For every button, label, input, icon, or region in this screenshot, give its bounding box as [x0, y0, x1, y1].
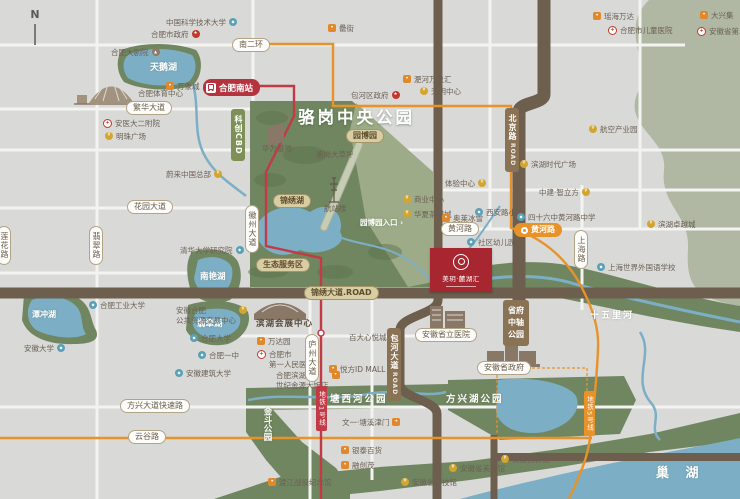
poi-text: 骆岗大草坪 — [316, 150, 354, 160]
pill-text: 花园大道 — [134, 202, 166, 211]
school-icon — [89, 301, 97, 309]
pill-text: 南二环 — [239, 40, 263, 49]
compass: N — [24, 8, 46, 44]
poi-label: 合肥工业大学 — [89, 301, 145, 311]
poi-label: 蔚来中国总部 — [166, 170, 222, 180]
poi-text: 安徽大学 — [24, 344, 54, 354]
shop-icon — [328, 24, 336, 32]
poi-text: 滨湖卓越城 — [658, 220, 696, 230]
poi-label: 安徽省科技馆 — [401, 478, 457, 488]
poi-label: 万达园 — [257, 337, 291, 347]
poi-text: 融创茂 — [352, 461, 375, 471]
area-name: 天鹅湖 — [150, 60, 177, 73]
poi-text: 淝河万象汇 — [414, 75, 452, 85]
poi-text: 明珠广场 — [116, 132, 146, 142]
road-pill: 莲花路 — [0, 226, 11, 265]
road-pill: 地铁1号线 — [316, 386, 327, 431]
pill-text: 生态服务区 — [263, 260, 303, 269]
gold-icon — [520, 160, 528, 168]
road-pill: 花园大道 — [127, 200, 173, 214]
poi-text: 航站楼 — [324, 204, 347, 214]
gold-icon — [420, 87, 428, 95]
poi-label: 明珠广场 — [105, 132, 146, 142]
pill-text: 徽州大道 — [248, 211, 257, 247]
road-pill: 省府中轴公园 — [503, 300, 529, 346]
gov-icon — [192, 30, 200, 38]
poi-text: 合肥体育中心 — [138, 89, 183, 99]
shop-icon — [341, 461, 349, 469]
poi-label: 骆岗大草坪 — [316, 150, 354, 160]
pill-text: 安徽省立医院 — [422, 330, 470, 339]
poi-label: 滨湖时代广场 — [520, 160, 576, 170]
poi-label: 商业中心 — [403, 195, 444, 205]
shop-icon — [341, 446, 349, 454]
gold-icon — [401, 478, 409, 486]
project-name: 美玥·麓湖汇 — [442, 273, 480, 283]
pill-text: 繁华大道 — [133, 103, 165, 112]
gold-icon — [582, 188, 590, 196]
gold-icon — [478, 179, 486, 187]
gold-icon — [647, 220, 655, 228]
school-icon — [597, 263, 605, 271]
area-name: 十五里河 — [590, 308, 634, 321]
gold-icon — [449, 464, 457, 472]
poi-text: 文一·塘溪津门 — [342, 418, 389, 428]
poi-label: 安徽建筑大学 — [175, 369, 231, 379]
poi-text: 百大心悦城 — [349, 333, 387, 343]
road-pill: 生态服务区 — [256, 258, 310, 272]
poi-text: 瑶海万达 — [604, 12, 634, 22]
shop-icon — [329, 365, 337, 373]
poi-text: 上海世界外国语学校 — [608, 263, 676, 273]
labels-layer: 南二环繁华大道花园大道翡翠路莲花路徽州大道黄河路上海路方兴大道快速路云谷路庐州大… — [0, 0, 740, 499]
poi-label: 合肥市儿童医院 — [608, 26, 673, 36]
pill-text: 园博园 — [353, 131, 377, 140]
compass-needle-icon — [34, 24, 36, 45]
poi-text: 四十六中黄河路中学 — [528, 213, 596, 223]
poi-text: 商业中心 — [414, 195, 444, 205]
poi-label: 安医大二附院 — [103, 119, 160, 129]
poi-label: 清华大学研究院 — [180, 246, 244, 256]
pill-text: 省府中轴公园 — [508, 306, 524, 339]
poi-text: 大兴集 — [711, 11, 734, 21]
pill-text: 翡翠路 — [92, 232, 101, 259]
school-icon — [57, 344, 65, 352]
poi-text: 清华大学研究院 — [180, 246, 233, 256]
poi-text: 中国科学技术大学 — [166, 18, 226, 28]
gold-icon — [403, 195, 411, 203]
road-pill: 方兴大道快速路 — [120, 399, 190, 413]
road-pill: 庐州大道 — [305, 334, 319, 382]
area-name: 方兴湖公园 — [446, 391, 504, 405]
shop-icon — [257, 337, 265, 345]
road-pill: 包河大道ROAD — [387, 328, 401, 401]
poi-label: 安徽合肥公共资源交易中心 — [176, 306, 247, 326]
pill-text: 莲花路 — [0, 232, 9, 259]
project-marker: 美玥·麓湖汇 — [430, 248, 492, 292]
poi-text: 中建·智立方 — [539, 188, 579, 198]
poi-text: 银泰百货 — [352, 446, 382, 456]
road-pill: 地铁5号线 — [584, 391, 595, 436]
pill-text: 锦绣湖 — [280, 196, 304, 205]
poi-label: 融创茂 — [341, 461, 375, 471]
poi-text: 安徽建筑大学 — [186, 369, 231, 379]
poi-label: 大兴集 — [700, 11, 734, 21]
pill-text: 黄河路 — [448, 224, 472, 233]
poi-label: 合肥一中 — [198, 351, 239, 361]
pill-text: 上海路 — [577, 236, 586, 263]
road-pill: 科创CBD — [231, 109, 245, 161]
hefei-south-station-label: 合肥南站 — [203, 79, 260, 96]
pill-subtext: ROAD — [391, 372, 397, 395]
area-name: 金斗公园 — [261, 407, 273, 441]
pill-text: 方兴大道快速路 — [127, 401, 183, 410]
poi-text: 包河区政府 — [351, 91, 389, 101]
shop-icon — [593, 12, 601, 20]
poi-text: 合肥市儿童医院 — [620, 26, 673, 36]
station-name: 合肥南站 — [219, 82, 253, 94]
road-pill: 翡翠路 — [89, 226, 103, 265]
road-pill: 安徽省政府 — [477, 361, 531, 375]
poi-label: 四十六中黄河路中学 — [517, 213, 596, 223]
gold-icon — [589, 125, 597, 133]
poi-text: 万达园 — [268, 337, 291, 347]
poi-text: 安徽省科技馆 — [412, 478, 457, 488]
school-icon — [175, 369, 183, 377]
road-pill: 安徽省立医院 — [415, 328, 477, 342]
pill-text: 安徽省政府 — [484, 363, 524, 372]
poi-text: 罍街 — [339, 24, 354, 34]
road-pill: 园博园 — [346, 129, 384, 143]
road-pill: 黄河路 — [514, 223, 562, 237]
poi-text: 安徽省美术馆 — [460, 464, 505, 474]
cross-icon — [103, 119, 112, 128]
poi-text: 蔚来中国总部 — [166, 170, 211, 180]
pill-text: 云谷路 — [135, 432, 159, 441]
school-icon — [236, 246, 244, 254]
poi-text: 安徽省第二人民医院 — [709, 27, 740, 37]
poi-label: 合肥市政府 — [151, 30, 200, 40]
poi-label: 安徽省美术馆 — [449, 464, 505, 474]
area-name: 园博园入口 › — [360, 217, 403, 228]
project-emblem-icon — [453, 254, 469, 270]
road-pill: 锦绣大道.ROAD — [304, 286, 379, 300]
pill-text: 科创CBD — [234, 115, 243, 155]
poi-label: 包河区政府 — [351, 91, 400, 101]
school-icon — [198, 351, 206, 359]
pill-text: 包河大道 — [390, 334, 399, 370]
pill-text: 黄河路 — [531, 226, 555, 234]
poi-text: 合肥工业大学 — [100, 301, 145, 311]
road-pill: 锦绣湖 — [273, 194, 311, 208]
project-divider — [446, 286, 476, 287]
poi-label: 中建·智立方 — [539, 188, 590, 198]
poi-text: 体验中心 — [445, 179, 475, 189]
poi-text: 合肥大剧院 — [111, 48, 149, 58]
poi-label: 银泰百货 — [341, 446, 382, 456]
school-icon — [467, 238, 475, 246]
poi-label: 合肥大剧院 — [111, 48, 160, 58]
area-name: 潭冲湖 — [32, 309, 56, 320]
road-pill: 滨湖会展中心 — [250, 318, 319, 331]
poi-text: 天玥中心 — [431, 87, 461, 97]
shop-icon — [392, 418, 400, 426]
poi-label: 滨湖卓越城 — [647, 220, 696, 230]
shop-icon — [403, 75, 411, 83]
poi-text: 合肥市政府 — [151, 30, 189, 40]
poi-text: 悦方ID MALL — [340, 365, 385, 375]
poi-label: 华为基地 — [262, 144, 292, 154]
poi-label: 合肥大学 — [190, 334, 231, 344]
area-name: 塘西河公园 — [330, 391, 388, 405]
poi-label: 安徽大学 — [24, 344, 65, 354]
road-pill: 上海路 — [574, 230, 588, 269]
gov-icon — [392, 91, 400, 99]
cross-icon — [257, 350, 266, 359]
shop-icon — [700, 11, 708, 19]
area-name: 巢 湖 — [656, 462, 705, 481]
school-icon — [517, 213, 525, 221]
poi-label: 悦方ID MALL — [329, 365, 385, 375]
gold-icon — [239, 306, 247, 314]
poi-label: 渡江战役纪念馆 — [268, 478, 332, 488]
gold-icon — [105, 132, 113, 140]
metro-icon — [521, 227, 528, 234]
poi-label: 安徽创新馆 — [501, 455, 550, 465]
poi-text: 安医大二附院 — [115, 119, 160, 129]
pill-text: 锦绣大道.ROAD — [311, 288, 372, 297]
area-name: 南艳湖 — [200, 270, 226, 282]
road-pill: 黄河路 — [441, 222, 479, 236]
cross-icon — [697, 27, 706, 36]
poi-label: 罍街 — [328, 24, 354, 34]
shop-icon — [442, 214, 450, 222]
map-root: N 骆岗中央公园 合肥南站 美玥·麓湖汇 南二环繁华大道花园大道翡翠路莲花路徽州… — [0, 0, 740, 499]
pill-text: 北京路 — [508, 114, 517, 141]
gold-icon — [214, 170, 222, 178]
poi-text: 安徽创新馆 — [512, 455, 550, 465]
poi-label: 体验中心 — [445, 179, 486, 189]
poi-label: 航站楼 — [324, 204, 347, 214]
gold-icon — [501, 455, 509, 463]
poi-label: 航空产业园 — [589, 125, 638, 135]
poi-text: 滨湖时代广场 — [531, 160, 576, 170]
pill-text: 地铁5号线 — [586, 396, 594, 431]
poi-label: 瑶海万达 — [593, 12, 634, 22]
poi-label: 社区幼儿园 — [467, 238, 516, 248]
poi-label: 淝河万象汇 — [403, 75, 452, 85]
poi-label: 中国科学技术大学 — [166, 18, 237, 28]
poi-text: 航空产业园 — [600, 125, 638, 135]
cross-icon — [608, 26, 617, 35]
poi-label: 文一·塘溪津门 — [342, 418, 400, 428]
train-icon — [206, 83, 216, 93]
poi-text: 合肥一中 — [209, 351, 239, 361]
road-pill: 繁华大道 — [126, 101, 172, 115]
poi-text: 合肥大学 — [201, 334, 231, 344]
road-pill: 北京路ROAD — [505, 108, 519, 172]
pill-text: 地铁1号线 — [318, 391, 326, 426]
poi-label: 天玥中心 — [420, 87, 461, 97]
pill-subtext: ROAD — [509, 143, 515, 166]
school-icon — [475, 208, 483, 216]
compass-n-label: N — [24, 8, 46, 21]
pill-text: 庐州大道 — [308, 340, 317, 376]
poi-label: 上海世界外国语学校 — [597, 263, 676, 273]
road-pill: 南二环 — [232, 38, 270, 52]
poi-label: 安徽省第二人民医院 — [697, 27, 740, 37]
road-pill: 云谷路 — [128, 430, 166, 444]
landmark-icon — [152, 48, 160, 56]
gold-icon — [403, 210, 411, 218]
poi-text: 安徽合肥公共资源交易中心 — [176, 306, 236, 326]
shop-icon — [268, 478, 276, 486]
school-icon — [190, 334, 198, 342]
poi-label: 合肥体育中心 — [138, 89, 183, 99]
school-icon — [229, 18, 237, 26]
poi-text: 华为基地 — [262, 144, 292, 154]
road-pill: 徽州大道 — [245, 205, 259, 253]
poi-text: 渡江战役纪念馆 — [279, 478, 332, 488]
poi-text: 社区幼儿园 — [478, 238, 516, 248]
pill-text: 滨湖会展中心 — [256, 319, 313, 329]
